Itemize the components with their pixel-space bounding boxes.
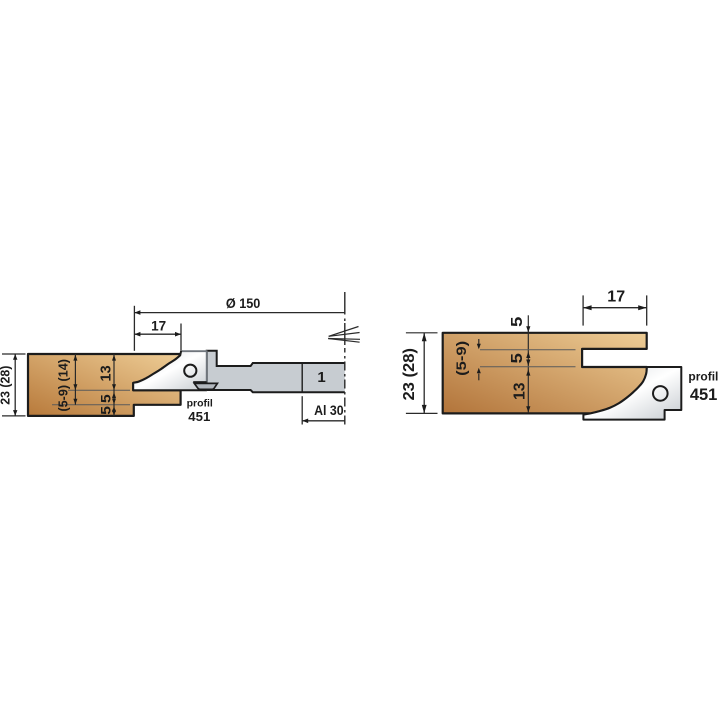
svg-text:(5-9): (5-9) [453, 341, 469, 376]
svg-text:5: 5 [508, 353, 525, 364]
svg-text:profil: profil [187, 398, 213, 410]
svg-text:23 (28): 23 (28) [401, 348, 418, 401]
svg-text:13: 13 [98, 365, 114, 381]
svg-text:17: 17 [151, 319, 166, 334]
svg-text:13: 13 [512, 382, 529, 400]
svg-text:451: 451 [690, 386, 718, 404]
svg-text:451: 451 [188, 409, 210, 424]
svg-text:Ø 150: Ø 150 [226, 295, 261, 311]
svg-text:23 (28): 23 (28) [0, 366, 12, 405]
svg-text:(5-9) (14): (5-9) (14) [57, 359, 71, 412]
svg-text:profil: profil [688, 370, 718, 384]
svg-text:5: 5 [508, 316, 525, 327]
svg-text:17: 17 [607, 289, 625, 306]
svg-text:5: 5 [99, 394, 114, 403]
svg-text:5: 5 [99, 406, 114, 415]
svg-text:1: 1 [317, 369, 325, 386]
svg-text:Al 30: Al 30 [314, 403, 344, 418]
